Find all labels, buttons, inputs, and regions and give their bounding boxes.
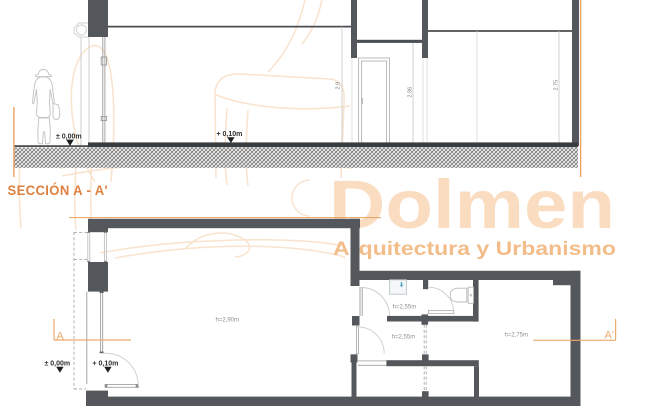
svg-text:+ 0,10m: + 0,10m	[93, 361, 119, 368]
svg-text:Arquitectura y Urbanismo: Arquitectura y Urbanismo	[333, 238, 616, 260]
svg-text:h=2,75m: h=2,75m	[505, 333, 529, 339]
svg-text:SECCIÓN A - A': SECCIÓN A - A'	[8, 181, 109, 198]
svg-text:Dolmen: Dolmen	[329, 166, 615, 243]
svg-text:A: A	[57, 331, 65, 343]
svg-text:h=2,90m: h=2,90m	[216, 318, 240, 324]
svg-text:± 0,00m: ± 0,00m	[45, 361, 71, 368]
svg-text:+ 0,10m: + 0,10m	[217, 131, 243, 138]
svg-text:A': A'	[605, 330, 614, 342]
svg-text:2.86: 2.86	[408, 87, 414, 98]
svg-text:2.75: 2.75	[554, 80, 560, 91]
svg-text:h=2,55m: h=2,55m	[393, 305, 417, 311]
svg-text:2.9: 2.9	[336, 82, 342, 90]
svg-text:± 0,00m: ± 0,00m	[56, 134, 82, 141]
svg-text:h=2,55m: h=2,55m	[392, 335, 416, 341]
